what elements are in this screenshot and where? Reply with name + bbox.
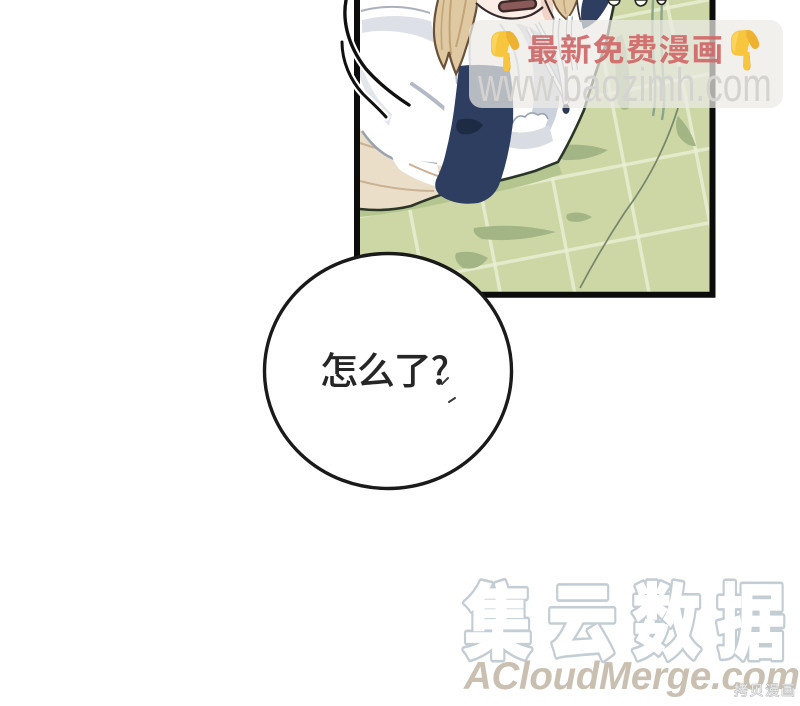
svg-text:ACloudMerge.com: ACloudMerge.com xyxy=(463,655,800,698)
svg-text:www.baozimh.com: www.baozimh.com xyxy=(477,58,772,111)
